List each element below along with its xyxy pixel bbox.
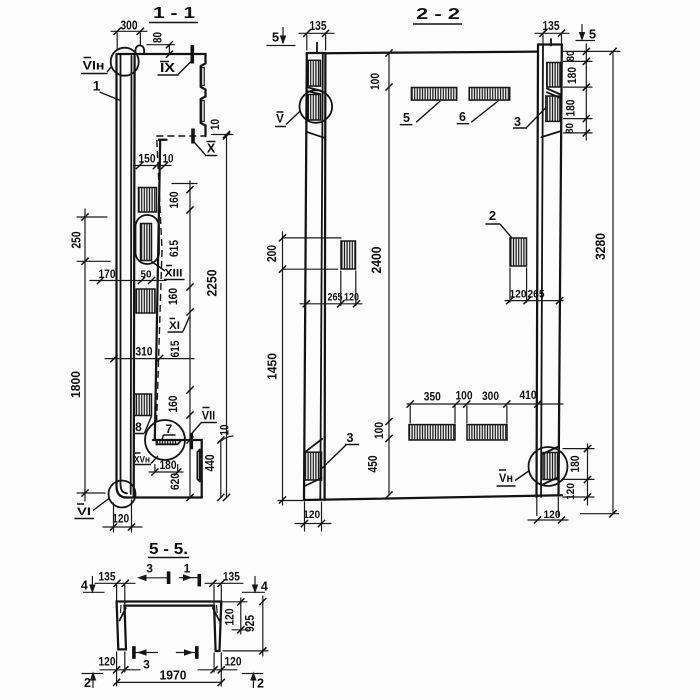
svg-text:Vн: Vн (499, 473, 513, 485)
svg-text:180: 180 (568, 455, 582, 472)
svg-text:925: 925 (243, 615, 257, 632)
svg-text:120: 120 (112, 514, 129, 526)
svg-text:VII: VII (202, 411, 216, 423)
svg-text:5: 5 (589, 27, 596, 42)
svg-text:2: 2 (84, 676, 91, 690)
svg-text:3: 3 (514, 115, 521, 129)
svg-text:X: X (207, 142, 216, 156)
svg-text:3: 3 (143, 658, 150, 672)
svg-text:350: 350 (424, 391, 441, 403)
svg-text:200: 200 (265, 245, 279, 262)
svg-text:5: 5 (272, 30, 279, 45)
svg-text:VIн: VIн (83, 61, 105, 73)
svg-text:120: 120 (344, 291, 359, 303)
svg-text:135: 135 (99, 571, 117, 583)
svg-text:80: 80 (565, 51, 577, 62)
svg-text:1800: 1800 (69, 371, 83, 398)
svg-text:620: 620 (170, 473, 182, 490)
svg-text:180: 180 (567, 67, 579, 84)
svg-text:1450: 1450 (266, 353, 280, 380)
svg-text:120: 120 (303, 509, 320, 521)
svg-text:2250: 2250 (205, 270, 220, 297)
svg-text:10: 10 (220, 425, 232, 436)
svg-text:XIII: XIII (165, 268, 183, 280)
svg-text:VI: VI (77, 506, 91, 518)
svg-text:2: 2 (257, 677, 264, 691)
svg-text:2400: 2400 (369, 247, 384, 274)
svg-text:5 - 5.: 5 - 5. (149, 541, 188, 558)
svg-text:V: V (276, 114, 284, 126)
svg-text:180: 180 (160, 460, 177, 472)
svg-text:80: 80 (564, 123, 576, 134)
svg-text:120: 120 (565, 483, 577, 500)
svg-text:135: 135 (223, 571, 241, 583)
svg-text:1970: 1970 (160, 669, 187, 683)
svg-text:10: 10 (210, 119, 222, 130)
svg-text:300: 300 (482, 391, 499, 403)
svg-text:160: 160 (168, 288, 180, 305)
svg-text:5: 5 (403, 111, 410, 125)
svg-text:450: 450 (366, 455, 380, 472)
svg-text:2 - 2: 2 - 2 (416, 6, 460, 23)
svg-text:4: 4 (81, 579, 88, 593)
svg-text:135: 135 (310, 19, 327, 33)
svg-text:615: 615 (170, 340, 182, 358)
svg-text:120: 120 (99, 657, 116, 669)
svg-text:160: 160 (168, 396, 180, 413)
svg-text:3: 3 (347, 431, 354, 445)
svg-text:6: 6 (459, 110, 466, 124)
svg-text:1 - 1: 1 - 1 (153, 5, 195, 22)
svg-text:615: 615 (169, 239, 181, 257)
svg-text:50: 50 (141, 269, 152, 281)
svg-text:3: 3 (146, 562, 153, 576)
svg-text:8: 8 (135, 420, 142, 434)
svg-text:2: 2 (489, 208, 496, 223)
svg-text:300: 300 (121, 18, 138, 33)
svg-text:410: 410 (520, 390, 537, 402)
svg-text:XI: XI (169, 320, 180, 332)
svg-text:180: 180 (566, 100, 578, 117)
svg-text:1: 1 (184, 562, 191, 576)
svg-text:160: 160 (169, 192, 181, 209)
svg-text:7: 7 (165, 422, 172, 436)
svg-text:120: 120 (225, 657, 242, 669)
svg-text:80: 80 (153, 32, 165, 43)
svg-text:100: 100 (370, 73, 382, 90)
svg-text:1: 1 (93, 79, 101, 94)
svg-text:310: 310 (136, 347, 153, 359)
svg-text:120: 120 (225, 609, 237, 626)
svg-text:250: 250 (70, 231, 84, 248)
svg-text:10: 10 (163, 154, 174, 166)
svg-text:100: 100 (374, 422, 386, 439)
svg-text:440: 440 (203, 454, 217, 471)
svg-text:4: 4 (261, 580, 268, 594)
svg-text:IX: IX (160, 61, 176, 75)
svg-text:3280: 3280 (593, 233, 608, 260)
